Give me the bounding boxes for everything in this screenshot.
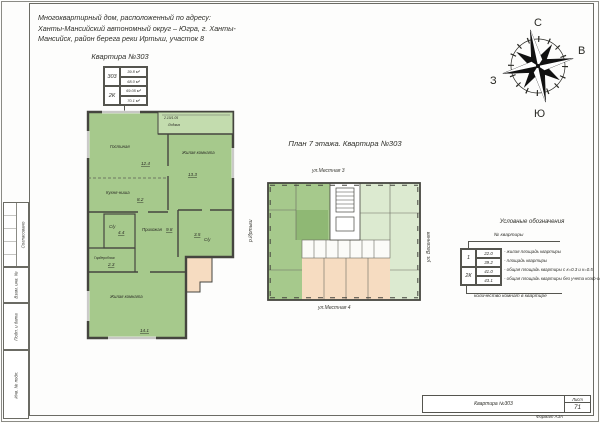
stamp-total-area-coef: 69.05 м² — [120, 86, 147, 96]
room-area: 13.3 — [188, 172, 197, 177]
legend-room-count: 2К — [461, 267, 476, 285]
apartment-stamp-table: 303 39.8 м² 68.0 м² 2К 69.05 м² 70.1 м² — [103, 66, 148, 106]
room-label: Лоджия — [167, 123, 180, 127]
frame-strip-label: Подп. и дата — [14, 313, 19, 341]
frame-strip-label: Инв. № подл. — [14, 371, 19, 398]
neighbour-apartment-area — [186, 257, 212, 292]
legend-row-label: - площадь квартиры — [504, 258, 547, 263]
room-label: Кухня-ниша — [106, 190, 130, 195]
address-line: Мансийск, район берега реки Иртыш, участ… — [38, 34, 236, 45]
title-block-sheet: Лист 71 — [565, 396, 590, 412]
street-label-bottom: ул.Местная 4 — [318, 305, 351, 311]
stamp-apartment-number: 303 — [104, 67, 120, 86]
compass-south-label: Ю — [534, 108, 545, 120]
room-label: Гардеробная — [94, 256, 115, 260]
legend-pointer-room-count: количество комнат в квартире — [474, 294, 547, 299]
title-block-name: Квартира №303 — [423, 396, 565, 412]
balcony-band — [302, 240, 390, 258]
compass-star — [495, 22, 581, 109]
frame-strip-inv: Инв. № подл. — [3, 350, 29, 419]
room-area: 14.1 — [140, 328, 149, 333]
room-area: 2.3 — [107, 262, 115, 267]
legend-row-label: - жилая площадь квартиры — [504, 249, 561, 254]
stamp-apartment-area: 68.0 м² — [120, 77, 147, 87]
room-area: 2.10/1.05 — [163, 116, 178, 120]
legend-value: 39.2 — [476, 258, 501, 267]
legend-leader-line — [468, 241, 560, 242]
title-block: Квартира №303 Лист 71 — [422, 395, 591, 413]
frame-strip-approved: Согласовано — [3, 202, 29, 267]
apartment-303-inner — [296, 210, 328, 240]
room-label: Прихожая — [142, 227, 163, 232]
project-address: Многоквартирный дом, расположенный по ад… — [38, 13, 236, 45]
legend-row-label: - общая площадь квартиры с к=0.3 и к=0.5 — [504, 267, 593, 272]
room-label: Гостиная — [110, 144, 130, 149]
stamp-room-count: 2К — [104, 86, 120, 105]
legend-apartment-number: 1 — [461, 249, 476, 267]
address-line: Многоквартирный дом, расположенный по ад… — [38, 13, 236, 24]
sheet-label: Лист — [565, 396, 590, 403]
room-area: 9.8 — [166, 227, 173, 232]
frame-strip-label: Согласовано — [21, 221, 26, 248]
legend-leader-line — [466, 284, 467, 293]
room-area: 8.2 — [137, 197, 144, 202]
legend-value: 41.0 — [476, 267, 501, 276]
frame-strip-rows — [4, 203, 16, 266]
frame-strip-podp: Подп. и дата — [3, 303, 29, 350]
street-label-top: ул.Местная 3 — [312, 168, 345, 174]
legend-title: Условные обозначения — [468, 219, 596, 225]
room-label: С/у — [109, 224, 116, 229]
compass-west-label: З — [490, 75, 497, 87]
legend-row-label: - общая площадь квартиры без учета коэф-… — [504, 276, 600, 281]
frame-strip-vzam: Взам. инв. № — [3, 267, 29, 303]
room-label: С/у — [204, 237, 211, 242]
legend-pointer-apartment-number: № квартиры — [494, 233, 523, 238]
address-line: Ханты-Мансийский автономный округ – Югра… — [38, 24, 236, 35]
room-label: Жилая комната — [109, 294, 143, 299]
legend-leader-line — [468, 241, 469, 248]
compass-rose: С В З Ю — [482, 5, 594, 120]
format-note: Формат А3А — [536, 414, 563, 419]
sheet-number: 71 — [565, 403, 590, 412]
room-label: Жилая комната — [181, 150, 215, 155]
legend-table: 1 22.0 39.2 2К 41.0 43.1 — [460, 248, 502, 286]
compass-north-label: С — [534, 17, 542, 29]
floor-plan-title: План 7 этажа. Квартира №303 — [260, 139, 430, 148]
room-area: 12.4 — [141, 161, 150, 166]
room-area: 4.4 — [118, 230, 125, 235]
street-label-right: ул. Весенняя — [426, 232, 432, 262]
compass-east-label: В — [578, 45, 585, 57]
room-area: 3.5 — [194, 232, 201, 237]
legend-value: 22.0 — [476, 249, 501, 258]
floor-key-plan — [250, 155, 445, 315]
stamp-living-area: 39.8 м² — [120, 67, 147, 77]
drawing-sheet: Многоквартирный дом, расположенный по ад… — [0, 0, 600, 423]
street-label-left: р.Иртыш — [248, 219, 254, 242]
stair-core — [330, 183, 360, 240]
apartment-title: Квартира №303 — [60, 52, 180, 61]
legend-value: 43.1 — [476, 276, 501, 285]
frame-strip-label: Взам. инв. № — [14, 271, 19, 298]
apartment-plan: Гостиная 12.4 Кухня-ниша 8.2 2.10/1.05 Л… — [82, 106, 245, 345]
